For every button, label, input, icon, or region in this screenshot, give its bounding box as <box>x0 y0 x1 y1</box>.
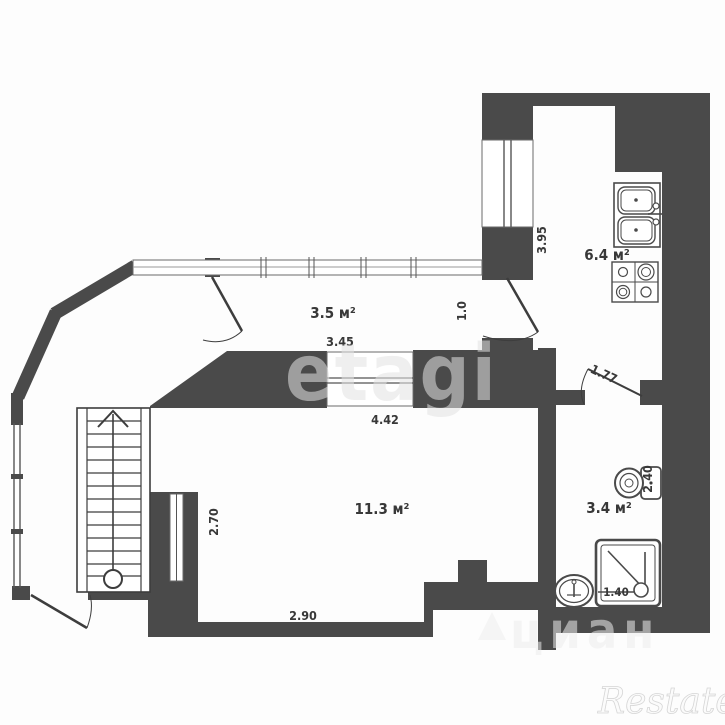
restate-watermark: Restate <box>597 681 725 722</box>
etagi-watermark: etagi <box>285 329 498 419</box>
living-area-label: 11.3 м² <box>355 500 410 518</box>
bathroom-area-label: 3.4 м² <box>586 499 632 517</box>
cian-watermark-text: циан <box>510 602 660 660</box>
bathroom-height-dim: 2.40 <box>640 465 655 493</box>
living-bottom-dim: 2.90 <box>289 608 317 623</box>
kitchen-sink <box>614 183 662 247</box>
kitchen-length-dim: 3.95 <box>534 226 549 254</box>
shower-width-dim: 1.40 <box>603 585 629 599</box>
balcony-window-band <box>133 257 482 278</box>
stair-wall-slot-window <box>170 494 183 581</box>
floor-plan-image: 3.5 м² 3.45 4.42 1.0 3.95 6.4 м² 1.77 2.… <box>0 0 725 725</box>
hallway-width-dim: 1.0 <box>454 301 469 321</box>
kitchen-window <box>482 140 533 227</box>
staircase <box>77 408 150 592</box>
kitchen-area-label: 6.4 м² <box>584 246 630 264</box>
stove <box>612 262 658 302</box>
hallway-area-label: 3.5 м² <box>310 304 356 322</box>
living-height-dim: 2.70 <box>206 508 221 536</box>
floor-plan-svg: 3.5 м² 3.45 4.42 1.0 3.95 6.4 м² 1.77 2.… <box>0 0 725 725</box>
